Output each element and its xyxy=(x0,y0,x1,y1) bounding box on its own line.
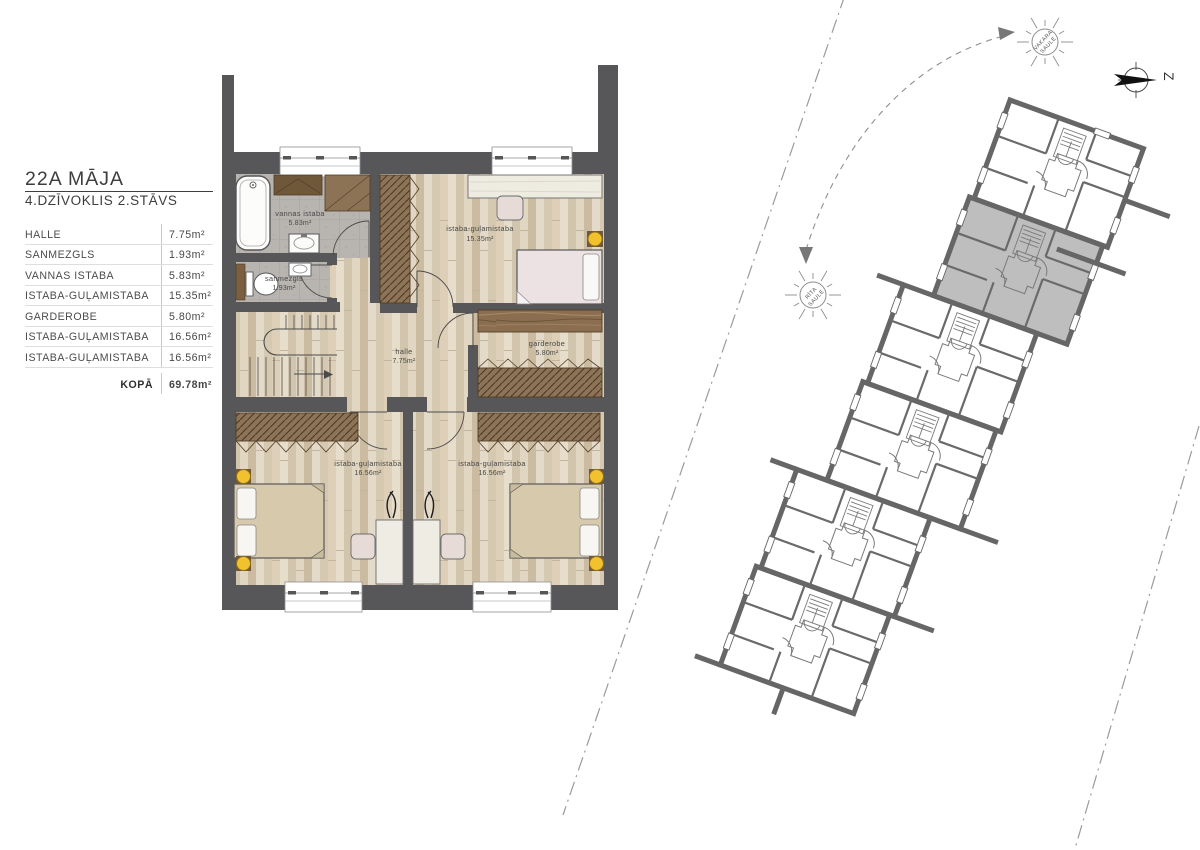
room-area: 15.35m² xyxy=(161,286,213,306)
title-divider xyxy=(25,191,213,192)
site-plan: VAKARA SAULE RĪTA SAULE Z xyxy=(540,0,1200,850)
room-area: 1.93m² xyxy=(161,245,213,265)
chair xyxy=(441,534,465,559)
svg-text:sanmezgls: sanmezgls xyxy=(265,274,303,283)
window xyxy=(280,147,360,177)
page: 22A MĀJA 4.DZĪVOKLIS 2.STĀVS HALLE 7.75m… xyxy=(0,0,1200,850)
cabinet xyxy=(274,175,322,195)
window xyxy=(285,582,362,612)
chair xyxy=(351,534,375,559)
page-subtitle: 4.DZĪVOKLIS 2.STĀVS xyxy=(25,193,213,209)
ceiling-lamp xyxy=(237,557,251,571)
svg-text:1.93m²: 1.93m² xyxy=(273,285,296,292)
total-value: 69.78m² xyxy=(161,373,213,394)
room-label: ISTABA-GUĻAMISTABA xyxy=(25,347,161,367)
wardrobe xyxy=(236,413,358,441)
legend-block: 22A MĀJA 4.DZĪVOKLIS 2.STĀVS HALLE 7.75m… xyxy=(25,168,213,394)
svg-text:istaba-guļamistaba: istaba-guļamistaba xyxy=(334,459,402,468)
table-total-row: KOPĀ 69.78m² xyxy=(25,373,213,394)
room-area: 16.56m² xyxy=(161,347,213,367)
svg-text:halle: halle xyxy=(395,347,412,356)
desk xyxy=(413,520,440,584)
desk xyxy=(376,520,403,584)
cabinet xyxy=(236,264,245,300)
room-label: ISTABA-GUĻAMISTABA xyxy=(25,286,161,306)
svg-text:16.56m²: 16.56m² xyxy=(478,470,506,477)
room-label: ISTABA-GUĻAMISTABA xyxy=(25,327,161,347)
pillow xyxy=(237,488,256,519)
room-label: HALLE xyxy=(25,224,161,244)
arrowhead xyxy=(799,247,813,264)
table-row: ISTABA-GUĻAMISTABA 16.56m² xyxy=(25,347,213,368)
room-area: 16.56m² xyxy=(161,327,213,347)
total-label: KOPĀ xyxy=(25,373,161,394)
table-row: HALLE 7.75m² xyxy=(25,224,213,245)
svg-text:15.35m²: 15.35m² xyxy=(466,236,494,243)
room-label: GARDEROBE xyxy=(25,306,161,326)
arrowhead xyxy=(998,27,1015,40)
table-row: ISTABA-GUĻAMISTABA 16.56m² xyxy=(25,327,213,348)
bathtub xyxy=(236,176,270,250)
room-area: 5.80m² xyxy=(161,306,213,326)
chair xyxy=(497,196,523,220)
room-area: 5.83m² xyxy=(161,265,213,285)
table-row: VANNAS ISTABA 5.83m² xyxy=(25,265,213,286)
table-row: ISTABA-GUĻAMISTABA 15.35m² xyxy=(25,286,213,307)
room-area: 7.75m² xyxy=(161,224,213,244)
svg-text:istaba-guļamistaba: istaba-guļamistaba xyxy=(446,224,514,233)
ceiling-lamp xyxy=(237,470,251,484)
boundary-line-radiostacijas xyxy=(1074,426,1199,850)
page-title: 22A MĀJA xyxy=(25,168,213,190)
svg-text:vannas istaba: vannas istaba xyxy=(275,209,325,218)
pillow xyxy=(237,525,256,556)
svg-text:5.83m²: 5.83m² xyxy=(289,220,312,227)
room-label: SANMEZGLS xyxy=(25,245,161,265)
north-label: Z xyxy=(1161,72,1177,81)
svg-text:7.75m²: 7.75m² xyxy=(393,358,416,365)
svg-text:16.56m²: 16.56m² xyxy=(354,470,382,477)
toilet-tank xyxy=(246,272,253,296)
svg-text:istaba-guļamistaba: istaba-guļamistaba xyxy=(458,459,526,468)
table-row: SANMEZGLS 1.93m² xyxy=(25,245,213,266)
north-arrow-icon xyxy=(1114,62,1157,98)
room-label: VANNAS ISTABA xyxy=(25,265,161,285)
table-row: GARDEROBE 5.80m² xyxy=(25,306,213,327)
building-outline xyxy=(685,61,1189,783)
